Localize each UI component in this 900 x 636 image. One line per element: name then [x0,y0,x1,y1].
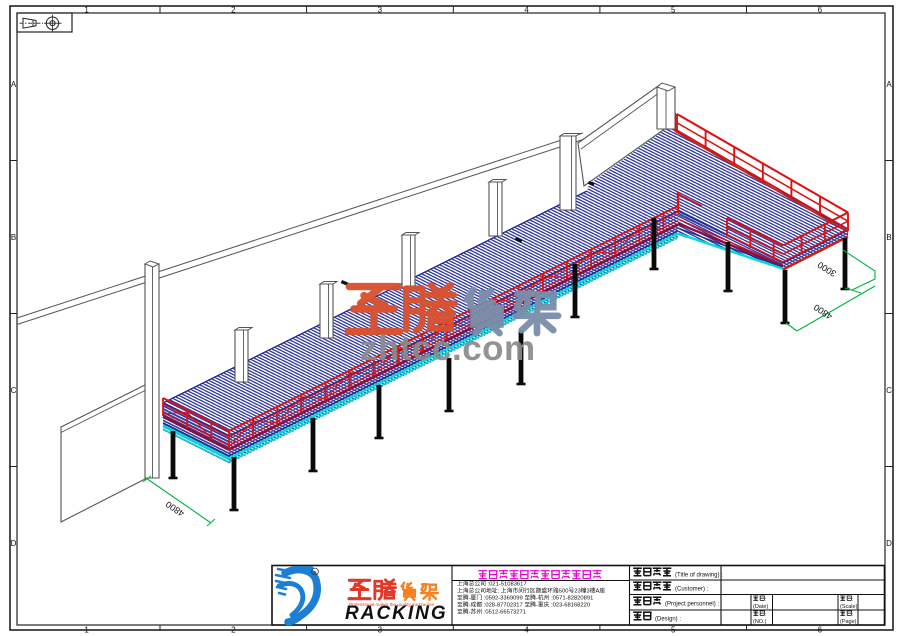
svg-text:至腾-厦门 :0592-3369099 至腾-杭州 :05: 至腾-厦门 :0592-3369099 至腾-杭州 :0571-82820891 [457,594,593,602]
svg-text:B: B [11,233,16,242]
svg-text:上海总公司地址: 上海市闵行区颛盛环路500号23幢3楼A座: 上海总公司地址: 上海市闵行区颛盛环路500号23幢3楼A座 [457,587,605,595]
svg-text:zhtcc.com: zhtcc.com [360,329,536,368]
svg-text:1: 1 [84,5,89,14]
svg-text:3: 3 [378,626,383,635]
svg-text:(Project personnel) :: (Project personnel) : [665,602,719,608]
svg-text:(Page): (Page) [840,619,857,625]
svg-text:(Scale): (Scale) [840,604,858,610]
svg-text:上海总公司 :021-51083617: 上海总公司 :021-51083617 [457,580,527,588]
svg-text:(Title of drawing) :: (Title of drawing) : [675,573,723,579]
svg-text:(Customer) :: (Customer) : [675,587,709,593]
svg-text:至腾-苏州 :0512-66573271: 至腾-苏州 :0512-66573271 [457,608,526,616]
svg-text:6: 6 [818,626,823,635]
svg-text:D: D [11,539,17,548]
svg-text:A: A [11,80,17,89]
svg-text:1: 1 [84,626,89,635]
svg-text:2: 2 [231,5,236,14]
svg-text:4: 4 [524,626,529,635]
svg-text:2: 2 [231,626,236,635]
svg-text:5: 5 [671,5,676,14]
svg-text:6: 6 [818,5,823,14]
svg-text:4: 4 [524,5,529,14]
svg-text:B: B [886,233,891,242]
svg-text:(NO.): (NO.) [753,619,767,625]
svg-text:(Date): (Date) [753,604,768,610]
svg-text:C: C [886,386,892,395]
svg-text:5: 5 [671,626,676,635]
svg-text:C: C [11,386,17,395]
svg-text:D: D [886,539,892,548]
svg-text:RACKING: RACKING [345,603,448,624]
svg-text:3: 3 [378,5,383,14]
svg-text:至腾-成都 :028-87702317 至腾-重庆 :02: 至腾-成都 :028-87702317 至腾-重庆 :023-68168220 [457,601,590,609]
svg-text:A: A [886,80,892,89]
svg-text:(Design) :: (Design) : [655,617,681,623]
